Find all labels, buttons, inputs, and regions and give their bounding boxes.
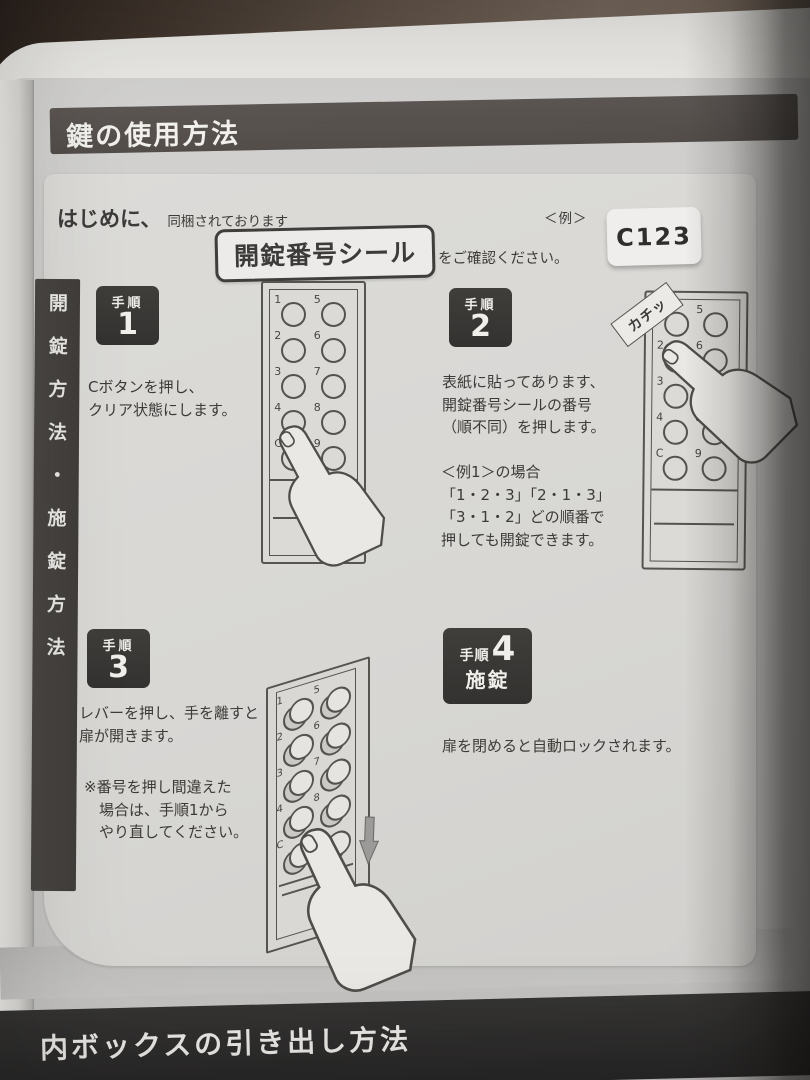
keypad-button-5: 5 (321, 302, 346, 327)
keypad-button-label: 2 (274, 329, 281, 342)
step4-text: 扉を閉めると自動ロックされます。 (442, 735, 681, 758)
keypad-button-3: 3 (283, 767, 313, 806)
keypad-button-8: 8 (320, 792, 350, 831)
step2-badge-number: 2 (449, 312, 512, 342)
keypad-button-label: 3 (277, 767, 283, 780)
sidebar-tab: 開錠方法・施錠方法 (31, 279, 80, 891)
step1-badge: 手順 1 (96, 286, 159, 345)
keypad-button-label: 4 (277, 803, 283, 816)
keypad-button-6: 6 (321, 338, 346, 363)
lever-bar (654, 523, 734, 562)
keypad-button-7: 7 (321, 374, 346, 399)
unlock-number-sticker-label: 開錠番号シール (234, 238, 417, 271)
step1-text: Cボタンを押し、 クリア状態にします。 (88, 376, 237, 421)
keypad-button-2: 2 (283, 731, 313, 770)
keypad-button-label: 5 (314, 293, 321, 306)
step4-badge: 手順 4 施錠 (443, 628, 532, 704)
keypad-button-label: 6 (314, 720, 320, 733)
example-code-sticker: C123 (606, 207, 701, 266)
keypad-button-7: 7 (320, 756, 350, 795)
step3-text: レバーを押し、手を離すと 扉が開きます。 (79, 702, 259, 747)
step1-badge-number: 1 (96, 310, 159, 340)
keypad-button-label: 8 (314, 401, 321, 414)
keypad-button-label: 5 (314, 684, 320, 697)
keypad-button-label: C (656, 447, 664, 460)
keypad-button-label: 4 (656, 411, 663, 424)
keypad-button-label: 7 (314, 365, 321, 378)
step3-badge-number: 3 (87, 653, 150, 683)
keypad-button-label: 5 (696, 303, 703, 316)
step2-text: 表紙に貼ってあります、 開錠番号シールの番号 （順不同）を押します。 (442, 371, 606, 439)
keypad-button-label: 7 (314, 756, 320, 769)
keypad-button-label: 1 (277, 695, 283, 708)
keypad-button-label: 2 (277, 731, 283, 744)
step2-example-text: ＜例1＞の場合 「1・2・3」「2・1・3」 「3・1・2」どの順番で 押しても… (441, 461, 611, 551)
keypad-button-label: 6 (314, 329, 321, 342)
keypad-button-3: 3 (281, 374, 306, 399)
example-code: C123 (616, 222, 692, 252)
keypad-button-label: 1 (274, 293, 281, 306)
intro-lead-text: はじめに、 (57, 207, 161, 231)
keypad-button-label: C (277, 839, 284, 852)
step2-badge: 手順 2 (449, 288, 512, 347)
keypad-button-label: 4 (274, 401, 281, 414)
booklet-spine (0, 80, 34, 1080)
keypad-button-label: 8 (314, 792, 320, 805)
pressing-hand-icon (274, 824, 433, 1004)
sidebar-vertical-label: 開錠方法・施錠方法 (40, 293, 71, 891)
step4-badge-number: 4 (492, 632, 516, 666)
keypad-button-6: 6 (320, 720, 350, 759)
example-caption: ＜例＞ (544, 207, 588, 227)
keypad-button-1: 1 (283, 695, 313, 734)
keypad-button-5: 5 (320, 684, 350, 723)
keypad-button-2: 2 (281, 338, 306, 363)
pressing-hand-icon (262, 423, 394, 575)
keypad-button-1: 1 (281, 302, 306, 327)
step3-badge: 手順 3 (87, 629, 150, 688)
confirm-text: をご確認ください。 (438, 247, 569, 268)
manual-page-photo: 鍵の使用方法 開錠方法・施錠方法 はじめに、同梱されております 開錠番号シール … (0, 0, 810, 1080)
step3-note-text: ※番号を押し間違えた 場合は、手順1から やり直してください。 (84, 776, 248, 844)
step4-badge-sub-label: 施錠 (443, 664, 532, 693)
unlock-number-sticker-box: 開錠番号シール (214, 225, 435, 283)
step4-badge-label: 手順 (460, 645, 490, 665)
keypad-button-label: 3 (274, 365, 281, 378)
